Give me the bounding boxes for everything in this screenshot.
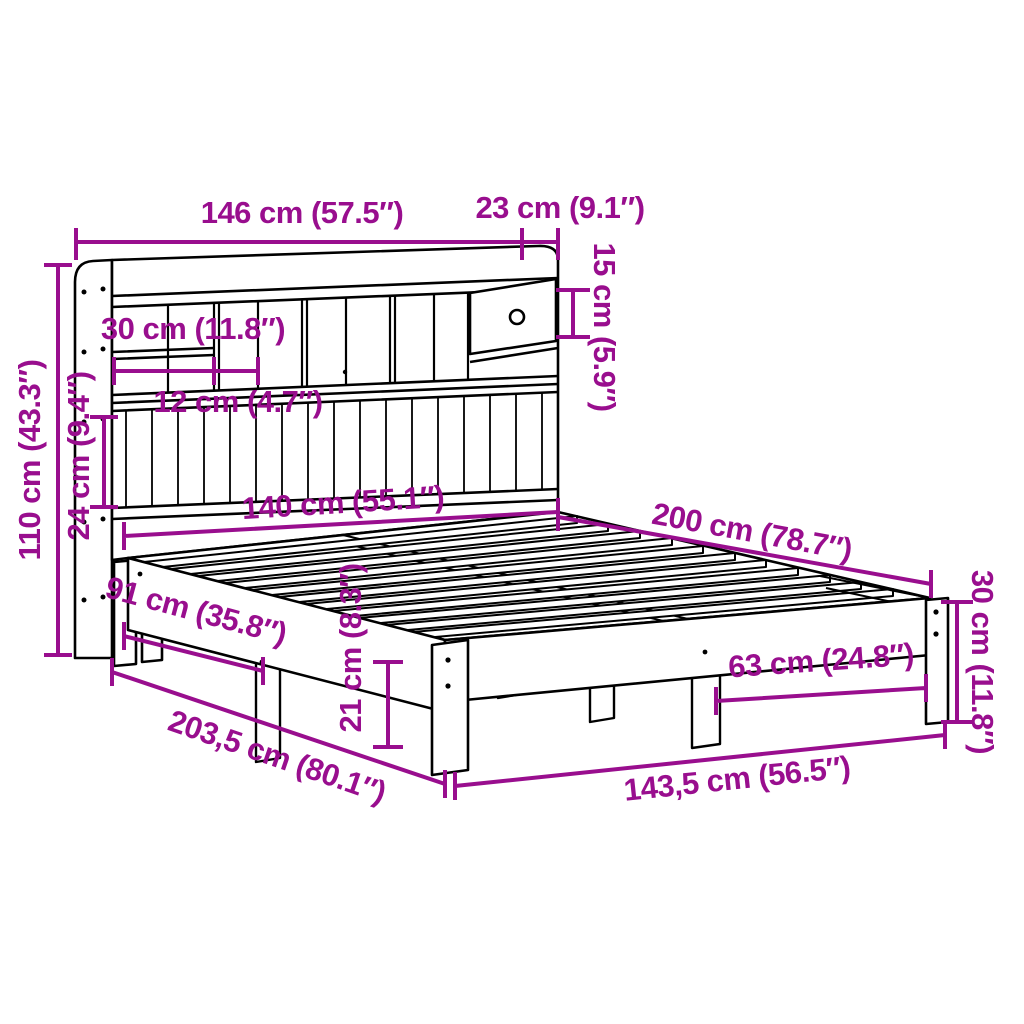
dim-label-slat-panel-height: 24 cm (9.4″): [61, 371, 97, 540]
dim-label-drawer-height: 15 cm (5.9″): [586, 242, 622, 411]
drawer-knob: [510, 310, 524, 324]
dim-drawer-height-line: [556, 290, 590, 337]
corner-leg-right: [926, 598, 948, 724]
dim-label-compartment-width: 30 cm (11.8″): [101, 311, 285, 347]
dim-label-frame-height: 30 cm (11.8″): [964, 570, 1000, 754]
dim-label-under-bed-clearance: 21 cm (8.3″): [333, 563, 369, 732]
dim-label-headboard-depth: 23 cm (9.1″): [475, 190, 644, 226]
bed-line-art: [0, 0, 1024, 1024]
dim-label-slot-width: 12 cm (4.7″): [153, 384, 322, 420]
dimension-diagram: 146 cm (57.5″) 23 cm (9.1″) 15 cm (5.9″)…: [0, 0, 1024, 1024]
dim-label-headboard-height: 110 cm (43.3″): [12, 360, 48, 561]
dim-label-headboard-width: 146 cm (57.5″): [201, 195, 404, 231]
